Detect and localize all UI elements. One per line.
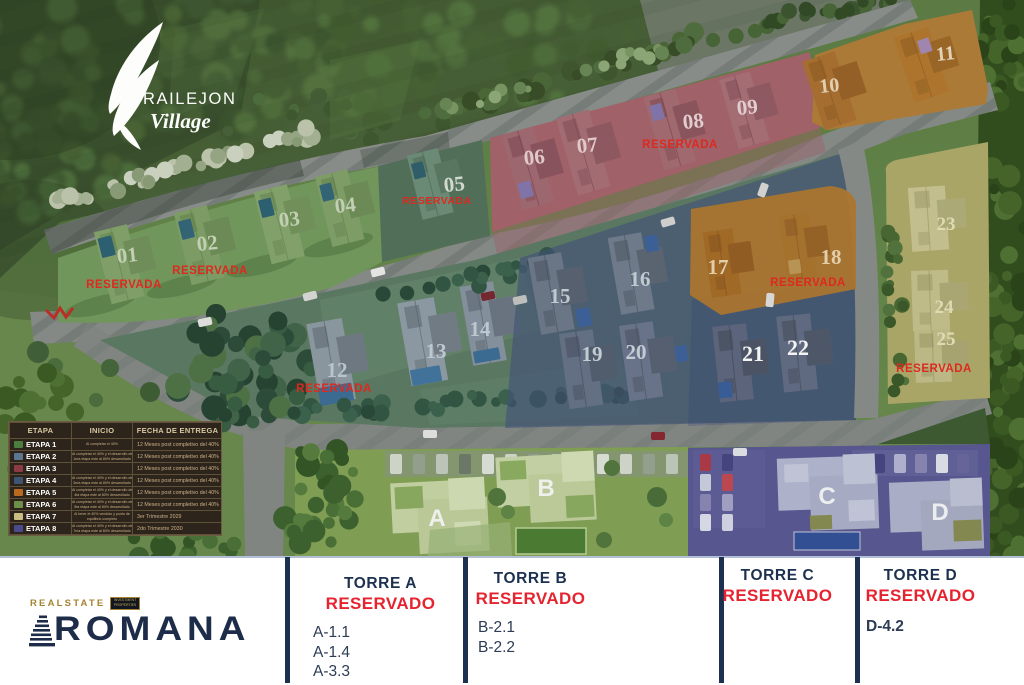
svg-text:RAILEJON: RAILEJON <box>143 90 237 108</box>
svg-text:Village: Village <box>150 109 211 133</box>
